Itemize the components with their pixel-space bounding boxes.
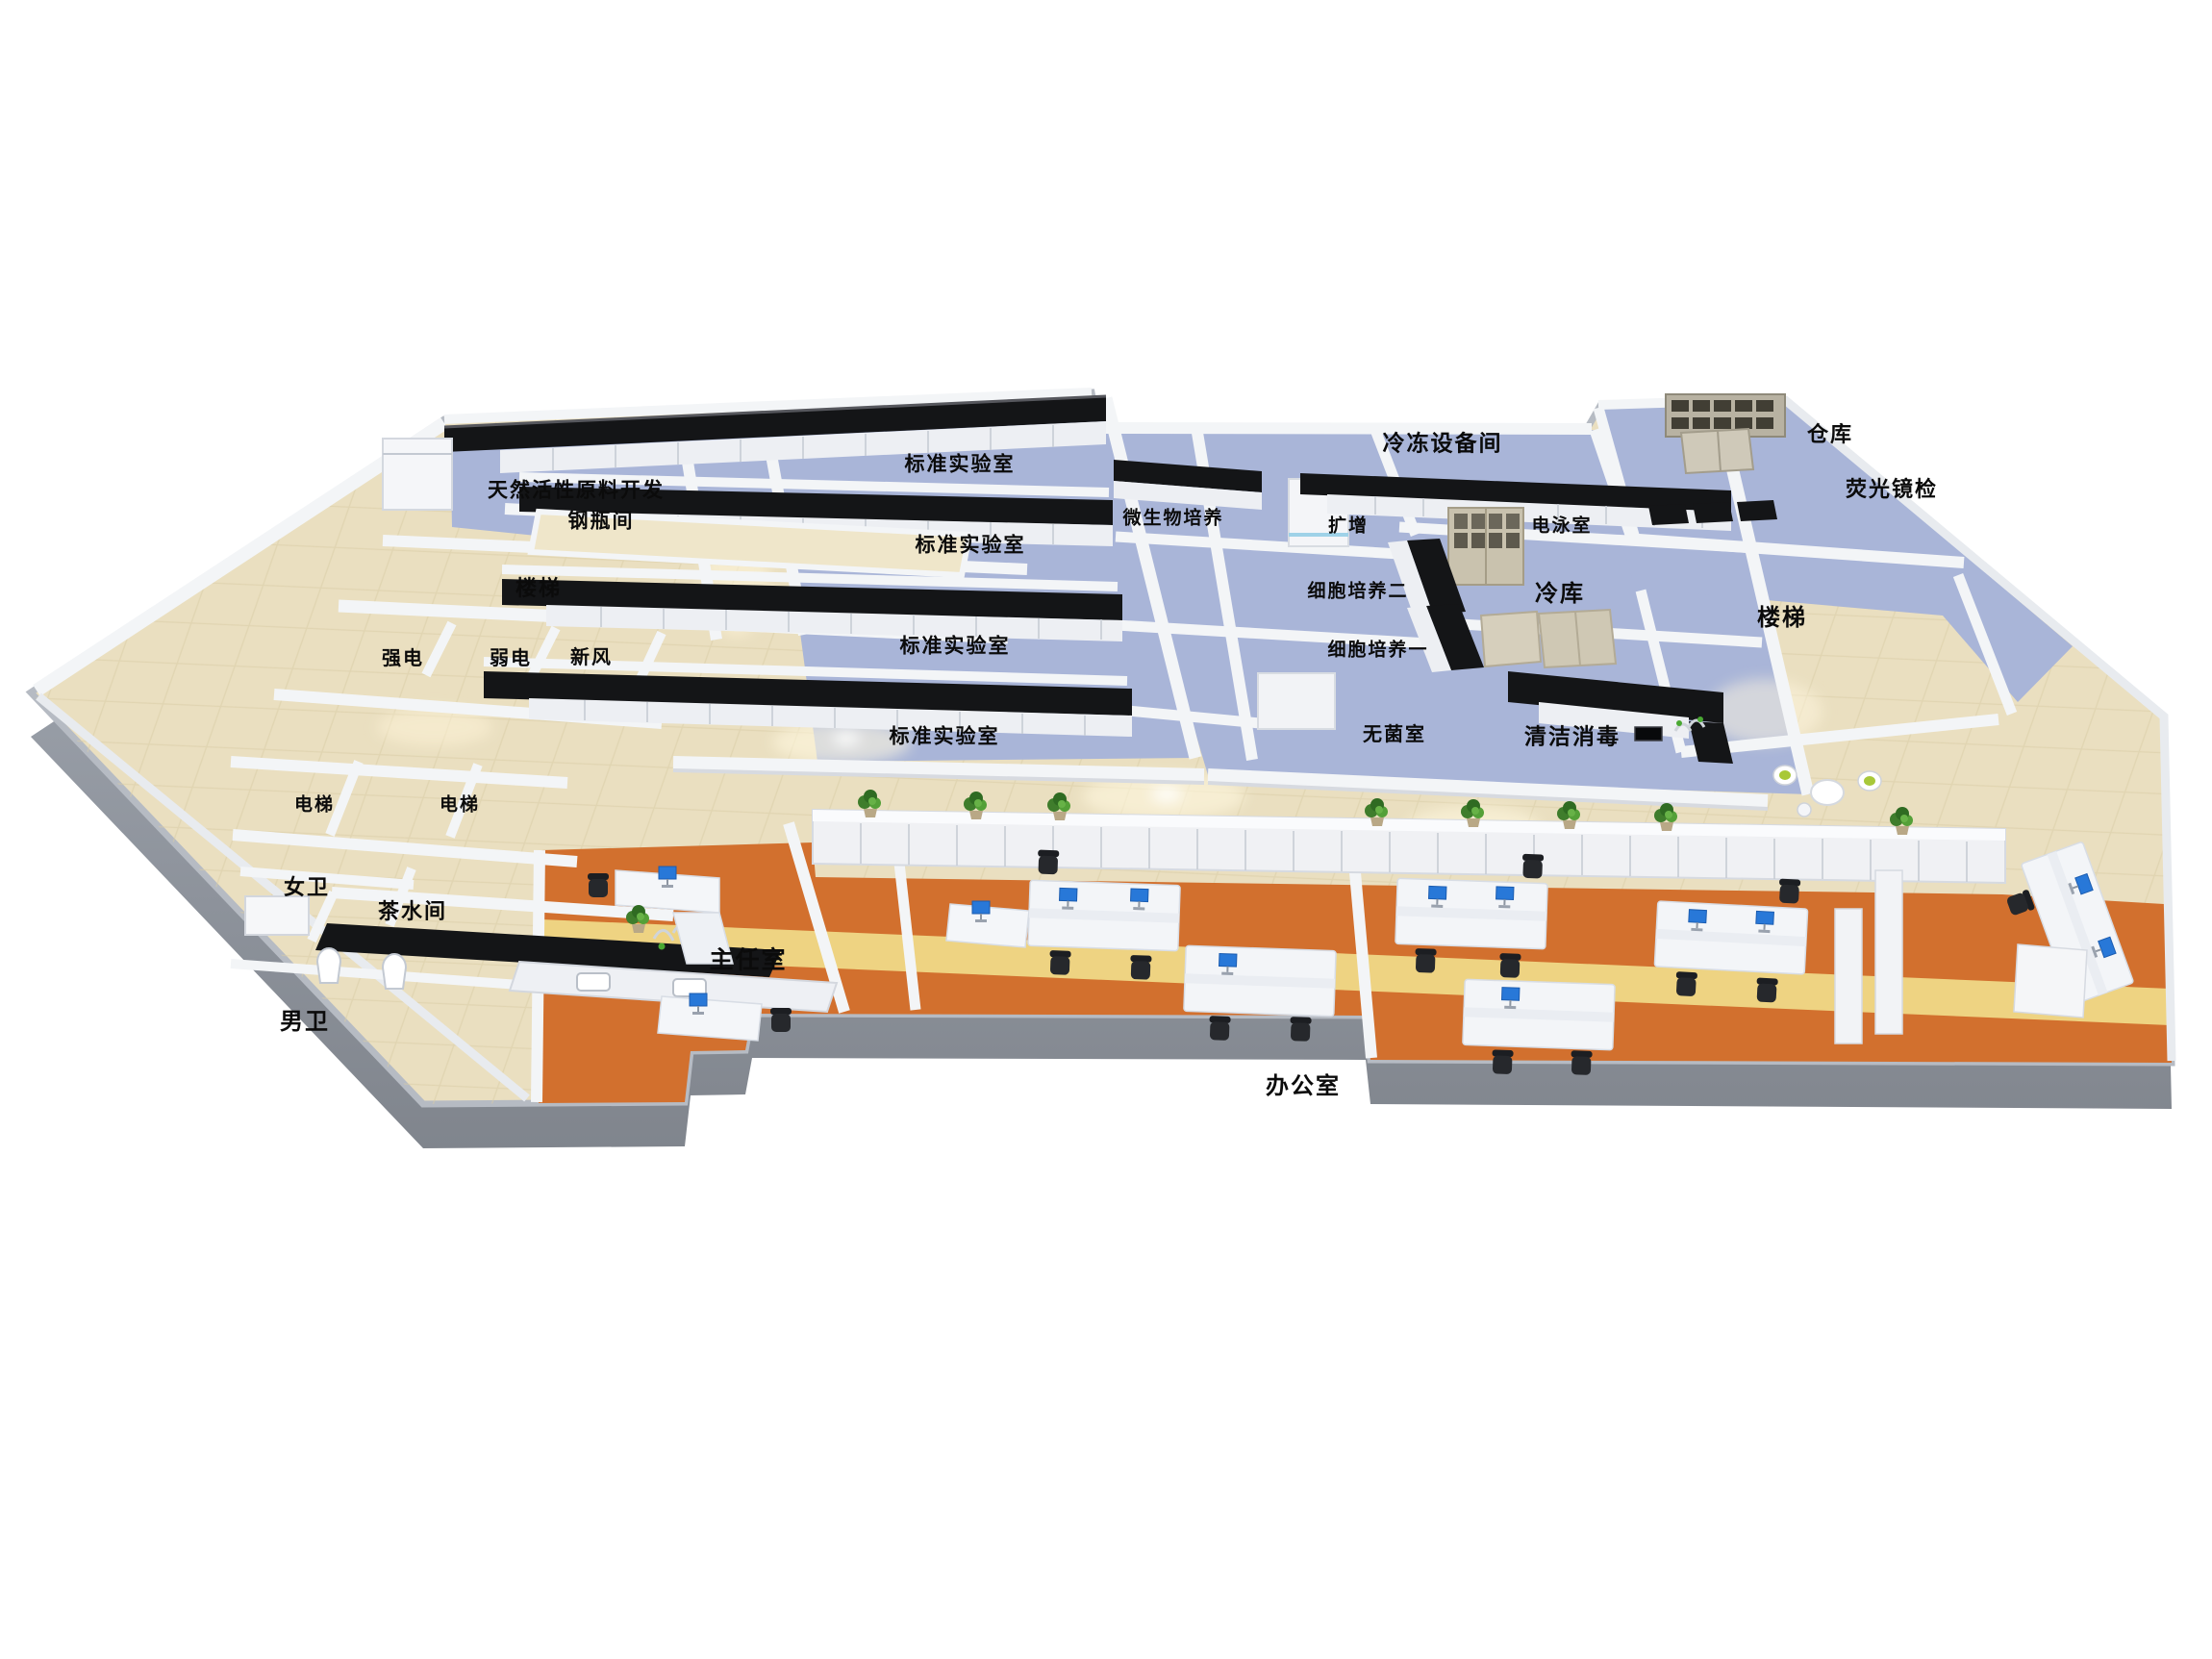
label-womens-restroom: 女卫 — [284, 877, 330, 898]
label-natural-actives-dev: 天然活性原料开发 — [488, 481, 665, 501]
office-chair-icon — [1209, 1016, 1231, 1041]
label-tea-room: 茶水间 — [378, 901, 447, 922]
label-cell-culture-2: 细胞培养二 — [1307, 583, 1408, 601]
sterile-room-unit — [1258, 673, 1335, 729]
desk-pod — [1654, 901, 1807, 974]
teapot — [1797, 803, 1811, 817]
desk-pod — [1463, 979, 1615, 1049]
label-fluorescence: 荧光镜检 — [1846, 479, 1938, 500]
cold-storage-units — [1481, 610, 1616, 667]
round-table — [1811, 780, 1844, 805]
label-sterile-room: 无菌室 — [1363, 725, 1426, 744]
label-director-office: 主任室 — [709, 949, 787, 973]
label-standard-lab-2: 标准实验室 — [916, 536, 1026, 556]
label-elevator-2: 电梯 — [440, 796, 480, 815]
office-chair-icon — [1290, 1017, 1312, 1042]
label-stairs-right: 楼梯 — [1757, 607, 1807, 630]
desk-pod — [1395, 878, 1547, 948]
sink-basin — [1635, 727, 1662, 741]
label-weak-power: 弱电 — [490, 649, 532, 668]
floorplan-scene: 天然活性原料开发 钢瓶间 楼梯 强电 弱电 新风 电梯 电梯 女卫 茶水间 男卫… — [0, 0, 2212, 1659]
label-gas-cylinder-room: 钢瓶间 — [568, 512, 635, 532]
label-microbial-culture: 微生物培养 — [1122, 510, 1223, 528]
label-warehouse: 仓库 — [1807, 424, 1853, 445]
office-chair-icon — [1499, 953, 1521, 978]
lounge-chair-seat — [1864, 776, 1875, 786]
label-standard-lab-1: 标准实验室 — [905, 455, 1016, 475]
label-elevator-1: 电梯 — [294, 796, 335, 815]
wall-north-core — [1102, 428, 1592, 429]
label-cleaning-disinfect: 清洁消毒 — [1524, 726, 1621, 748]
office-chair-icon — [588, 873, 609, 897]
urinal — [317, 948, 340, 983]
label-open-office: 办公室 — [1266, 1075, 1341, 1098]
label-electrophoresis: 电泳室 — [1531, 517, 1592, 536]
office-chair-icon — [1521, 854, 1544, 879]
desk-pod — [1028, 880, 1180, 950]
label-fresh-air: 新风 — [570, 648, 613, 667]
label-cell-culture-1: 细胞培养一 — [1327, 641, 1428, 660]
label-stairs-left: 楼梯 — [515, 578, 562, 599]
label-freezer-equipment: 冷冻设备间 — [1383, 433, 1503, 455]
floorplan-render — [0, 0, 2212, 1659]
label-cold-storage: 冷库 — [1535, 583, 1585, 606]
label-strong-power: 强电 — [382, 649, 424, 668]
label-standard-lab-3: 标准实验室 — [900, 637, 1011, 657]
glass-cabinet — [1448, 508, 1523, 585]
office-chair-icon — [1571, 1050, 1593, 1075]
office-chair-icon — [1037, 850, 1059, 875]
office-column — [2014, 944, 2087, 1018]
fume-hood-booth — [383, 439, 452, 510]
office-chair-icon — [1049, 950, 1071, 975]
label-amplification: 扩增 — [1328, 517, 1369, 536]
label-mens-restroom: 男卫 — [280, 1011, 330, 1034]
desk-pod — [1184, 945, 1336, 1016]
urinal — [383, 954, 406, 989]
office-chair-icon — [770, 1008, 792, 1032]
office-chair-icon — [1756, 977, 1778, 1002]
office-chair-icon — [1778, 879, 1800, 904]
label-standard-lab-4: 标准实验室 — [890, 727, 1000, 747]
womens-sink — [245, 896, 309, 935]
office-chair-icon — [1492, 1049, 1514, 1074]
lounge-chair-seat — [1779, 770, 1791, 780]
office-chair-icon — [1675, 971, 1697, 996]
office-chair-icon — [1415, 948, 1437, 973]
office-chair-icon — [1130, 955, 1152, 980]
